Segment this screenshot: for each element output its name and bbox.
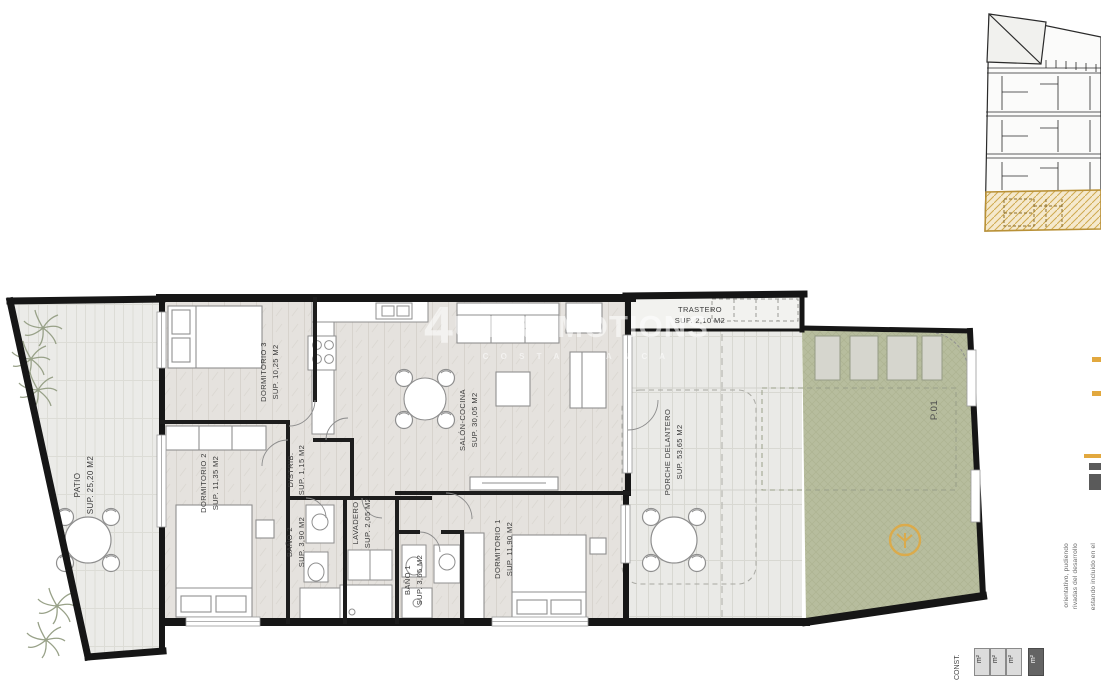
surface-table-header: CONST. [954, 640, 961, 680]
label-distrib-area: SUP. 1,15 M2 [297, 445, 306, 496]
surface-table: CONST. m² m² m² m² [952, 636, 1062, 671]
label-dorm2-name: DORMITORIO 2 [199, 453, 208, 513]
floor-plan-drawing: PATIO SUP. 25,20 M2 DORMITORIO 3 SUP. 10… [0, 0, 1101, 671]
key-plan [985, 14, 1101, 231]
logo-fragment-icon [1084, 454, 1101, 458]
disclaimer-text: rivadas del desarrollo [1072, 543, 1079, 609]
plot-number-label: P.01 [929, 400, 940, 420]
label-patio-area: SUP. 25,20 M2 [86, 456, 95, 515]
disclaimer-text: orientativo, pudiendo [1063, 543, 1070, 608]
garden-planters [815, 336, 942, 380]
logo-fragment-icon [1092, 391, 1101, 396]
label-salon-area: SUP. 30,05 M2 [470, 392, 479, 447]
logo-fragment-icon [1092, 357, 1101, 362]
label-distrib-name: DISTRIB. [286, 453, 295, 488]
label-porche-area: SUP. 53,65 M2 [675, 424, 684, 479]
label-dorm1-name: DORMITORIO 1 [493, 519, 502, 579]
main-floor-plan: PATIO SUP. 25,20 M2 DORMITORIO 3 SUP. 10… [10, 294, 983, 658]
logo-fragment-icon [1089, 463, 1101, 470]
label-salon-name: SALÓN-COCINA [458, 389, 467, 451]
label-lavadero-area: SUP. 2,05 M2 [363, 498, 372, 549]
label-porche-name: PORCHE DELANTERO [663, 409, 672, 495]
label-dorm2-area: SUP. 11,35 M2 [211, 456, 220, 511]
surface-table-cell: m² [974, 648, 990, 676]
porch-furniture [643, 509, 706, 572]
bed-dormitorio3 [168, 306, 262, 368]
key-plan-highlighted-unit [985, 190, 1101, 231]
logo-fragment-icon [1089, 474, 1101, 490]
label-dorm3-area: SUP. 10,25 M2 [271, 344, 280, 399]
label-dorm3-name: DORMITORIO 3 [259, 342, 268, 402]
label-bano2-name: BAÑO 2 [285, 527, 294, 557]
room-porche [628, 330, 802, 622]
label-lavadero-name: LAVADERO [351, 502, 360, 545]
label-bano2-area: SUP. 3,90 M2 [297, 517, 306, 568]
label-trastero-name: TRASTERO [678, 305, 722, 314]
label-trastero-area: SUP. 2,10 M2 [675, 316, 726, 325]
disclaimer-text: estando incluido en el [1090, 543, 1097, 610]
label-bano1-name: BAÑO 1 [403, 565, 412, 595]
label-patio-name: PATIO [73, 473, 82, 498]
surface-table-cell: m² [1006, 648, 1022, 676]
label-dorm1-area: SUP. 11,90 M2 [505, 522, 514, 577]
label-bano1-area: SUP. 3,65 M2 [415, 555, 424, 606]
surface-table-cell: m² [990, 648, 1006, 676]
surface-table-total-cell: m² [1028, 648, 1044, 676]
floor-plan-page: { "plan": { "plot_label": "P.01", "rooms… [0, 0, 1101, 671]
